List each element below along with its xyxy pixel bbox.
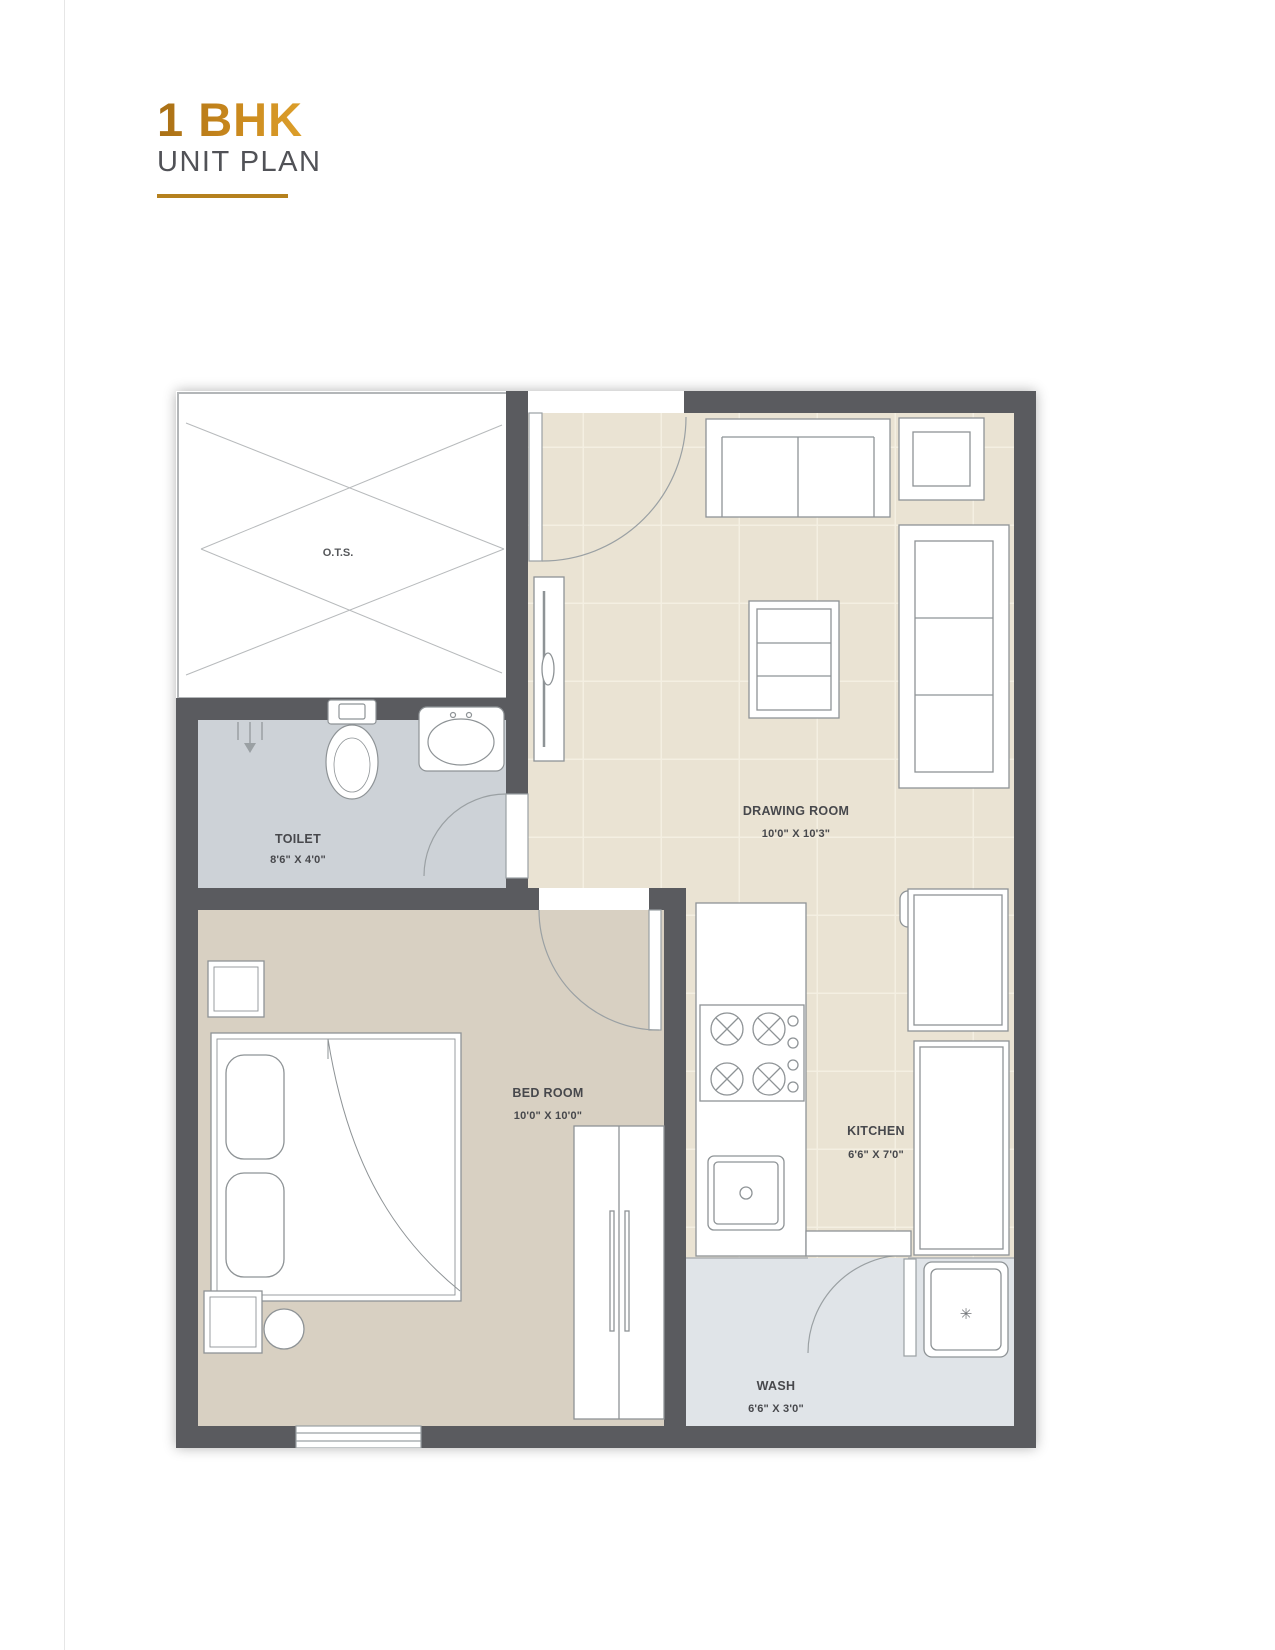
stool [264,1309,304,1349]
pillow [226,1173,284,1277]
wall-toilet-bedroom [176,888,539,910]
wall-bedroom-stub [649,888,686,910]
bed [211,1033,461,1301]
toilet-dims: 8'6" X 4'0" [270,854,326,866]
drawing-room-label: DRAWING ROOM [743,804,849,818]
kitchen-sink-icon [708,1156,784,1230]
wall-left [176,698,198,1448]
washing-machine-dial: ✳ [960,1306,973,1323]
tv-unit [534,577,564,761]
bed-room-label: BED ROOM [512,1086,583,1100]
armchair [899,418,984,500]
wash-label: WASH [757,1379,796,1393]
page-subtitle: UNIT PLAN [157,146,321,179]
wall-bottom [421,1426,1036,1448]
wc-icon [326,700,378,799]
wardrobe-handle [625,1211,629,1331]
sofa-right [899,525,1009,788]
wall-right [1014,391,1036,1448]
refrigerator [908,889,1008,1031]
bed-room-dims: 10'0" X 10'0" [514,1110,582,1122]
wardrobe [574,1126,664,1419]
wall-top [684,391,1036,413]
bedroom-window [296,1426,421,1448]
floor-plan: ✳ O.T.S. TOILET 8 [176,391,1036,1448]
title-block: 1 BHK UNIT PLAN [157,96,321,198]
drawing-room-dims: 10'0" X 10'3" [762,828,830,840]
wall-toilet-drawing [506,391,528,796]
wardrobe-handle [610,1211,614,1331]
wash-furniture: ✳ [924,1262,1008,1357]
floor-plan-svg: ✳ O.T.S. TOILET 8 [176,391,1036,1448]
sofa-top [706,419,890,517]
toilet-label: TOILET [275,832,321,846]
page-edge-line [64,0,65,1650]
title-underline [157,194,288,198]
bedside-table-top [208,961,264,1017]
washbasin-icon [419,707,504,771]
kitchen-platform-extension [806,1231,911,1256]
kitchen-counter-right [914,1041,1009,1255]
room-ots [178,393,508,698]
kitchen-dims: 6'6" X 7'0" [848,1149,904,1161]
coffee-table [749,601,839,718]
washing-machine-icon: ✳ [924,1262,1008,1357]
kitchen-label: KITCHEN [847,1124,905,1138]
pillow [226,1055,284,1159]
ots-label: O.T.S. [323,547,354,559]
page-title: 1 BHK [157,96,321,143]
wash-dims: 6'6" X 3'0" [748,1403,804,1415]
stove-icon [700,1005,804,1101]
wall-bedroom-kitchen [664,910,686,1426]
